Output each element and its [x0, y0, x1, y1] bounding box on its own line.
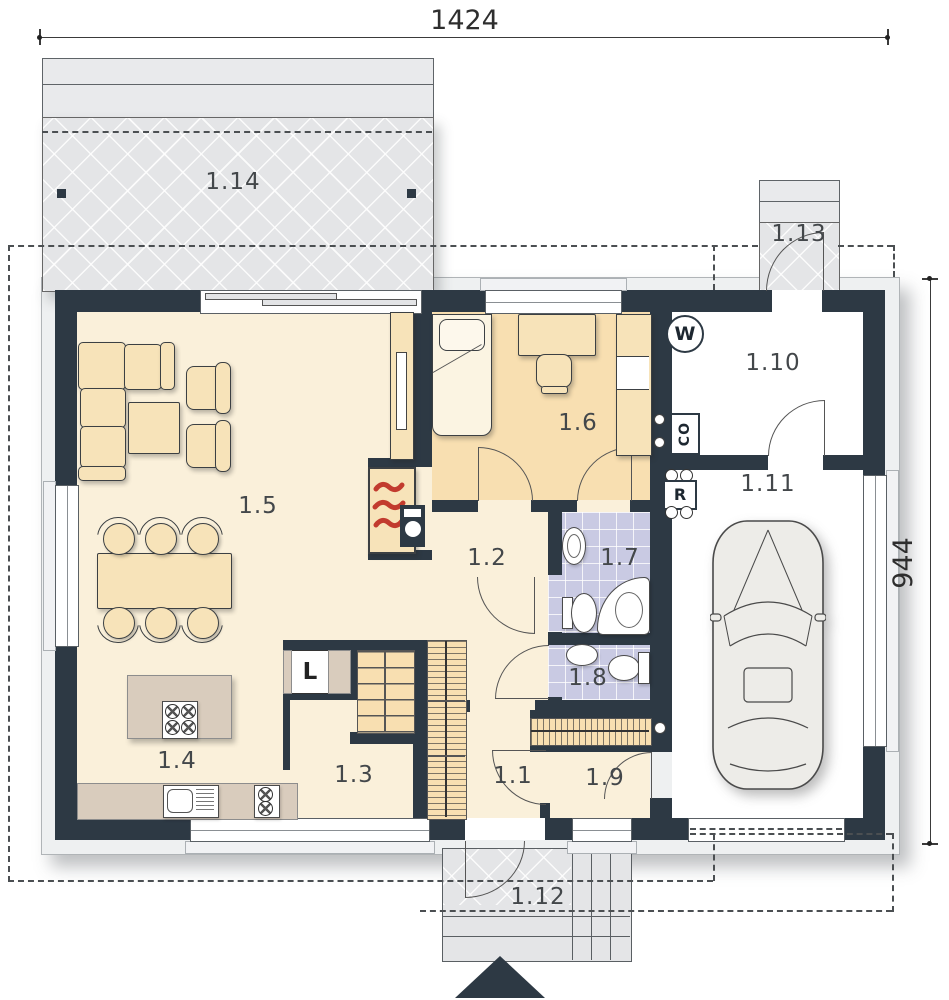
wall-segment — [620, 290, 772, 312]
entrance-opening — [465, 818, 545, 840]
burner-icon — [181, 704, 196, 719]
central-heating-unit: CO — [670, 413, 700, 455]
porch-step — [759, 180, 840, 203]
wall-segment — [630, 818, 688, 840]
room-label-1-7: 1.7 — [578, 544, 662, 572]
tv-screen — [396, 352, 407, 430]
coffee-table — [128, 402, 180, 454]
garage-door-dashed-line — [690, 828, 842, 830]
room-label-1-14: 1.14 — [191, 168, 275, 196]
wall-segment — [55, 645, 77, 840]
radiator-label: R — [674, 485, 686, 504]
garage-door — [688, 818, 845, 842]
sofa-seat — [80, 426, 126, 468]
stove-vent — [404, 509, 421, 517]
wall-segment — [863, 745, 885, 840]
wall-segment — [283, 640, 413, 650]
fridge-side-panel — [283, 650, 292, 694]
dimension-line-top — [40, 37, 889, 38]
entrance-arrow-icon — [455, 956, 545, 998]
wall-segment — [530, 710, 650, 718]
wardrobe-rail-bar — [531, 730, 649, 732]
washbasin — [566, 644, 598, 666]
driveway-dashed — [690, 833, 892, 835]
wall-segment — [672, 455, 768, 470]
sliding-door-panel — [262, 299, 417, 306]
wall-segment — [823, 455, 863, 470]
dimension-dot — [885, 35, 890, 40]
roof-outline-dashed — [8, 245, 758, 247]
wall-segment — [545, 818, 572, 840]
dining-chair — [103, 523, 135, 555]
room-label-1-10: 1.10 — [731, 349, 815, 377]
armchair-back — [215, 420, 231, 472]
wall-segment — [412, 312, 432, 467]
roof-outline-dashed — [893, 245, 895, 277]
room-label-1-13: 1.13 — [757, 220, 841, 248]
fridge-label: L — [303, 659, 318, 685]
office-chair-back — [541, 386, 568, 394]
room-label-1-4: 1.4 — [135, 747, 219, 775]
window-sill — [886, 470, 899, 752]
wall-segment — [283, 700, 290, 770]
sink-drainer — [196, 789, 214, 811]
wall-segment — [650, 312, 672, 752]
wall-segment — [630, 500, 650, 512]
wall-segment — [863, 290, 885, 475]
room-label-1-11: 1.11 — [726, 470, 810, 498]
wardrobe-rail — [530, 718, 652, 746]
closet-rail — [427, 640, 467, 820]
kitchen-window — [190, 818, 430, 842]
sofa-armrest — [78, 466, 126, 481]
wall-vent — [654, 414, 665, 425]
wall-segment — [650, 798, 672, 818]
sofa-seat — [80, 388, 126, 428]
sink-bowl — [167, 789, 193, 813]
wall-segment — [420, 290, 485, 312]
bedroom-window — [485, 290, 622, 314]
dining-chair — [145, 607, 177, 639]
dimension-height-label: 944 — [888, 528, 918, 598]
room-label-1-3: 1.3 — [312, 761, 396, 789]
living-window — [55, 485, 79, 647]
water-heater-label: W — [675, 323, 696, 345]
office-chair — [536, 354, 572, 388]
small-window — [572, 818, 632, 842]
porch-door-opening — [772, 290, 822, 312]
roof-outline-dashed — [838, 245, 893, 247]
wall-segment — [540, 803, 550, 818]
wall-segment — [55, 290, 77, 485]
dimension-line-right — [930, 279, 931, 845]
closet-rail-bar — [445, 641, 447, 817]
dimension-width-label: 1424 — [397, 5, 532, 35]
toilet-tank — [638, 652, 650, 684]
porch-step-edge — [591, 848, 592, 960]
dimension-dot — [927, 276, 932, 281]
wall-segment — [413, 640, 427, 818]
dining-chair — [187, 523, 219, 555]
dining-chair — [145, 523, 177, 555]
burner-icon — [165, 720, 180, 735]
terrace-post — [407, 189, 416, 198]
water-heater-symbol: W — [666, 315, 704, 353]
driveway-dashed — [892, 833, 894, 912]
radiator-pipe — [665, 506, 678, 519]
burner-icon — [181, 720, 196, 735]
radiator-pipe — [680, 506, 693, 519]
window-sill — [567, 841, 637, 854]
room-label-1-5: 1.5 — [216, 492, 300, 520]
roof-outline-dashed — [8, 245, 10, 882]
bathtub-inner — [615, 592, 643, 628]
room-label-1-8: 1.8 — [546, 664, 630, 692]
terrace-step — [42, 84, 434, 119]
burner-icon — [258, 787, 273, 802]
sofa-seat — [124, 344, 162, 390]
terrace-roof-dashed-line — [42, 131, 432, 133]
burner-icon — [165, 704, 180, 719]
wall-segment — [432, 500, 478, 512]
room-label-1-9: 1.9 — [563, 764, 647, 792]
burner-icon — [258, 801, 273, 816]
porch-step-edge — [442, 916, 630, 917]
terrace-step — [42, 58, 434, 86]
fridge-side-panel — [328, 650, 351, 694]
fridge: L — [290, 650, 330, 694]
staircase — [357, 650, 415, 734]
desk — [518, 314, 596, 356]
wall-vent — [654, 437, 665, 448]
driveway-dashed — [420, 910, 892, 912]
porch-step-edge — [442, 936, 630, 937]
room-label-1-12: 1.12 — [496, 883, 580, 911]
garage-window — [863, 475, 887, 747]
roof-outline-dashed — [8, 880, 713, 882]
terrace-post — [57, 189, 66, 198]
roof-outline-dashed — [713, 834, 715, 881]
window-sill — [185, 841, 435, 854]
wardrobe-gap — [617, 356, 649, 390]
column-vent — [654, 722, 666, 734]
wall-segment — [548, 632, 562, 645]
wall-segment — [428, 818, 465, 840]
dining-chair — [187, 607, 219, 639]
terrace-deck — [42, 117, 434, 292]
wall-segment — [531, 500, 577, 512]
closet-shelf-line — [427, 700, 465, 702]
porch-step-edge — [610, 848, 611, 960]
car-top-view — [710, 518, 826, 792]
stove-flue — [405, 521, 421, 537]
dining-chair — [103, 607, 135, 639]
floor-plan: L W CO R — [0, 0, 949, 1000]
room-label-1-1: 1.1 — [471, 762, 555, 790]
armchair-back — [215, 362, 231, 414]
roof-outline-dashed — [713, 245, 715, 290]
closet-shelf-line — [427, 755, 465, 757]
toilet-bowl — [571, 593, 597, 633]
sofa-corner — [78, 342, 126, 390]
dimension-dot — [37, 35, 42, 40]
wall-segment — [548, 512, 562, 575]
central-heating-label: CO — [677, 422, 693, 446]
dimension-dot — [927, 841, 932, 846]
staircase-divider — [384, 650, 386, 732]
dining-table — [97, 553, 232, 609]
sofa-armrest — [160, 342, 175, 390]
room-label-1-6: 1.6 — [536, 409, 620, 437]
room-label-1-2: 1.2 — [445, 544, 529, 572]
